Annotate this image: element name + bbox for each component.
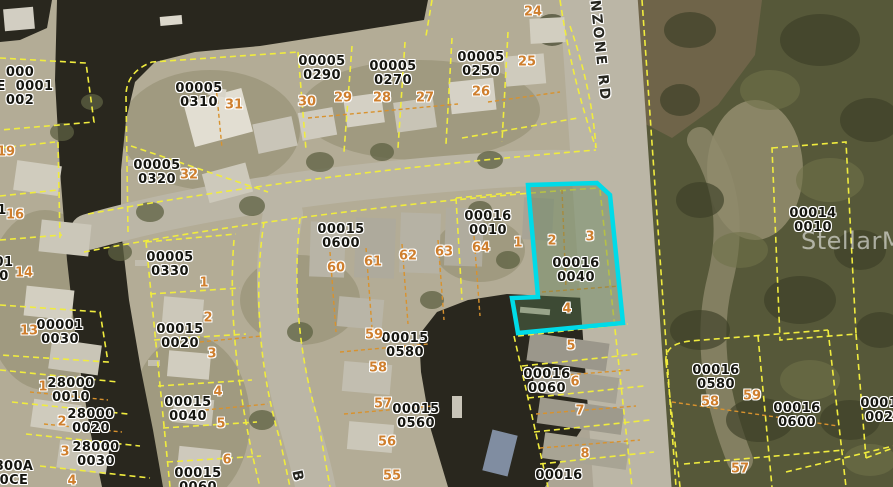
parcel-id-label: 00015 0580 [381, 332, 428, 360]
lot-number-label: 13 [20, 325, 38, 338]
map-labels-layer: 000 CE 0001 00200005 031000005 032000005… [0, 0, 893, 487]
lot-number-label: 6 [222, 454, 231, 467]
lot-number-label: 62 [399, 250, 417, 263]
road-name-label: B [289, 469, 305, 485]
lot-number-label: 31 [225, 99, 243, 112]
parcel-id-label: 00005 0270 [369, 60, 416, 88]
parcel-id-label: 28000 0020 [67, 408, 114, 436]
lot-number-label: 26 [472, 86, 490, 99]
parcel-id-label: 00015 0020 [156, 323, 203, 351]
lot-number-label: 59 [365, 329, 383, 342]
parcel-id-label: 00016 0600 [773, 402, 820, 430]
parcel-id-label: 00015 0060 [174, 467, 221, 487]
parcel-id-label: 00001 0030 [36, 319, 83, 347]
parcel-id-label: 00005 0250 [457, 51, 504, 79]
parcel-id-label: 28000 0010 [47, 377, 94, 405]
lot-number-label: 30 [298, 96, 316, 109]
lot-number-label: 58 [701, 396, 719, 409]
lot-number-label: 59 [743, 390, 761, 403]
parcel-id-label: 01 0 [0, 256, 13, 284]
parcel-id-label: 00016 0580 [692, 364, 739, 392]
lot-number-label: 27 [416, 92, 434, 105]
parcel-id-label: 00005 0320 [133, 159, 180, 187]
lot-number-label: 1 [199, 277, 208, 290]
lot-number-label: 2 [203, 312, 212, 325]
lot-number-label: 57 [374, 398, 392, 411]
lot-number-label: 58 [369, 362, 387, 375]
parcel-id-label: 00016 0060 [523, 368, 570, 396]
parcel-id-label: 00016 0010 [464, 210, 511, 238]
parcel-id-label: 00014 0010 [789, 207, 836, 235]
parcel-id-label: 28000 0030 [72, 441, 119, 469]
lot-number-label: 3 [207, 348, 216, 361]
lot-number-label: 2 [547, 235, 556, 248]
parcel-id-label: 000 CE 0001 002 [0, 66, 53, 108]
parcel-id-label: 00005 0310 [175, 82, 222, 110]
parcel-id-label: 00015 0040 [164, 396, 211, 424]
lot-number-label: 19 [0, 146, 15, 159]
parcel-id-label: 00005 0330 [146, 251, 193, 279]
lot-number-label: 55 [383, 470, 401, 483]
lot-number-label: 16 [6, 209, 24, 222]
lot-number-label: 5 [566, 340, 575, 353]
lot-number-label: 57 [731, 463, 749, 476]
lot-number-label: 3 [60, 446, 69, 459]
lot-number-label: 5 [216, 418, 225, 431]
lot-number-label: 4 [67, 475, 76, 487]
lot-number-label: 32 [180, 169, 198, 182]
lot-number-label: 28 [373, 92, 391, 105]
lot-number-label: 60 [327, 262, 345, 275]
lot-number-label: 2 [57, 416, 66, 429]
road-name-label: ANZONE RD [586, 0, 612, 103]
lot-number-label: 4 [213, 386, 222, 399]
parcel-id-label: 00015 0600 [317, 223, 364, 251]
lot-number-label: 61 [364, 256, 382, 269]
parcel-id-label: 00016 0020 [860, 397, 893, 425]
lot-number-label: 1 [38, 381, 47, 394]
parcel-id-label: 00005 0290 [298, 55, 345, 83]
lot-number-label: 24 [524, 6, 542, 19]
parcel-id-label: 800A 0CE [0, 460, 33, 487]
parcel-id-label: 00015 0560 [392, 403, 439, 431]
lot-number-label: 64 [472, 242, 490, 255]
lot-number-label: 56 [378, 436, 396, 449]
lot-number-label: 4 [562, 303, 571, 316]
lot-number-label: 1 [513, 237, 522, 250]
lot-number-label: 3 [585, 231, 594, 244]
lot-number-label: 29 [334, 92, 352, 105]
lot-number-label: 14 [15, 267, 33, 280]
parcel-map[interactable]: 000 CE 0001 00200005 031000005 032000005… [0, 0, 893, 487]
parcel-id-label: 00016 0040 [552, 257, 599, 285]
lot-number-label: 8 [580, 448, 589, 461]
lot-number-label: 7 [575, 405, 584, 418]
parcel-id-label: 00016 [535, 469, 582, 483]
lot-number-label: 25 [518, 56, 536, 69]
lot-number-label: 6 [570, 376, 579, 389]
lot-number-label: 63 [435, 246, 453, 259]
parcel-id-label: 1 [0, 204, 7, 218]
